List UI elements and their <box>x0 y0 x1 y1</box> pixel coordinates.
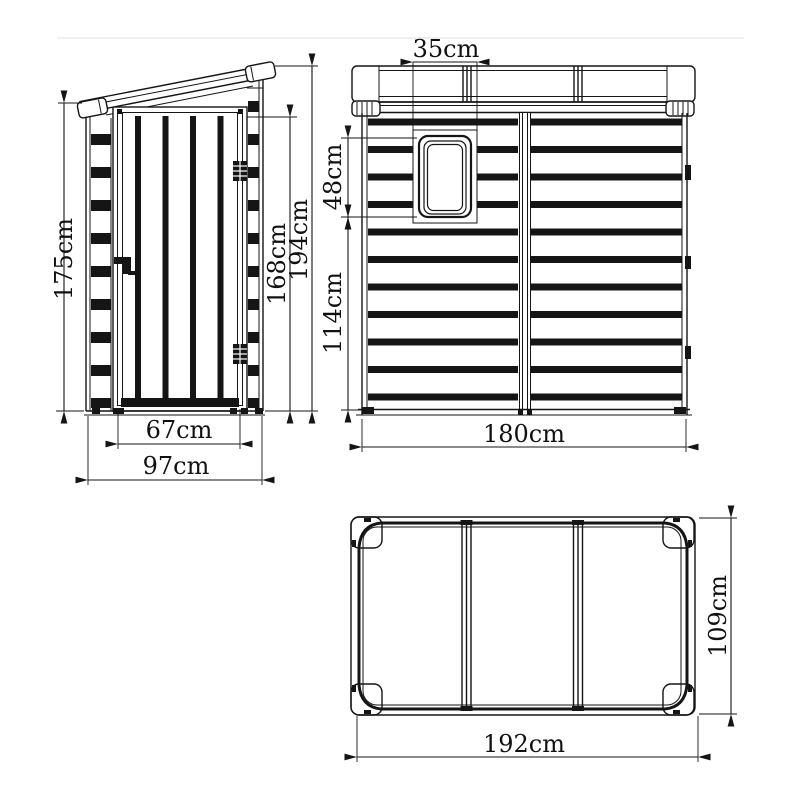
door-frame <box>113 107 247 411</box>
drawing-svg: 175cm 168cm 194cm 67cm 97cm 35cm 48cm 11… <box>0 0 800 800</box>
shed-dimension-drawing: 175cm 168cm 194cm 67cm 97cm 35cm 48cm 11… <box>0 0 800 800</box>
window <box>413 130 477 223</box>
center-stud <box>519 113 531 409</box>
dim-side-door-width: 67cm <box>146 416 213 444</box>
roof-fascia <box>352 66 695 102</box>
dim-front-window-width: 35cm <box>413 35 480 63</box>
roof-panel-dividers <box>461 520 585 711</box>
roof-corner-caps <box>351 517 694 715</box>
dim-side-height-front: 175cm <box>50 218 78 300</box>
dim-side-depth: 97cm <box>143 452 210 480</box>
door-hinge-icon <box>233 344 247 364</box>
dim-front-below-window: 114cm <box>319 272 347 354</box>
edge-hinge-tabs <box>685 165 691 359</box>
front-view <box>352 66 695 415</box>
dim-front-window-height: 48cm <box>319 143 347 210</box>
door <box>113 107 247 411</box>
door-hinge-icon <box>233 161 247 181</box>
dim-front-width: 180cm <box>483 420 565 448</box>
dim-top-length: 192cm <box>483 730 565 758</box>
top-view <box>351 517 695 715</box>
side-view <box>77 61 277 415</box>
dim-top-depth: 109cm <box>704 575 732 657</box>
dim-side-height-rear: 194cm <box>285 199 313 281</box>
